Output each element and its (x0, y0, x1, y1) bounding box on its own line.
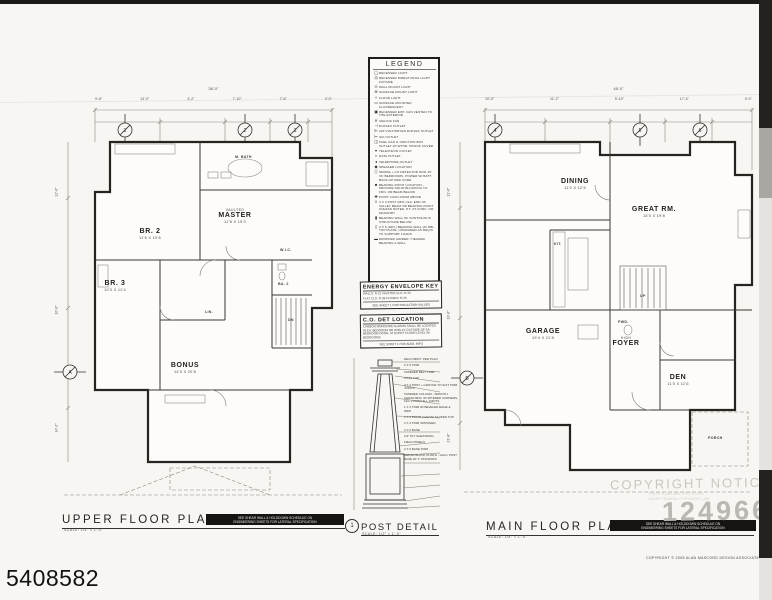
grid-bubble-label: 4 (494, 128, 497, 134)
legend-box: LEGEND ◯ RECESSED LIGHT ◎ RECESSED DIREC… (368, 57, 440, 283)
grid-bubble-label: 5 (639, 128, 642, 134)
legend-item: ⓢ SMOKE + CO DETECTOR W/IN 15' OF BEDROO… (373, 171, 436, 182)
legend-item-label: RECESSED EXH. FAN VENTED TO THE EXTERIOR (379, 111, 436, 118)
label-ba2: BA. 2 (278, 282, 289, 286)
label-up: UP (640, 294, 646, 298)
grid-bubble-label: 2 (244, 128, 247, 134)
room-label-br3: BR. 3 10'0 X 11'4 (85, 280, 145, 292)
legend-item-label: SURFACE MOUNTED FLUORESCENT (379, 102, 436, 109)
co-det-body: CARBON MONOXIDE ALARMS SHALL BE LOCATED … (363, 324, 439, 339)
legend-item-label: FUEL GAS & JUNCTION BOX OUTLET W/ WTHR. … (379, 141, 436, 148)
label-wic: W.I.C. (280, 248, 292, 252)
legend-item: ◆ SPEAKER LOCATION (373, 166, 436, 170)
legend-item-label: TELEVISION OUTLET (379, 150, 412, 154)
dimension-row: 10'-0"11'-2"5'-10"17'-4"9'-0" (485, 97, 752, 101)
callout-label: TAPERED COLUMN - SMOOTH CEDAR BDS. W/ MI… (404, 393, 458, 403)
grid-bubble-label: 3 (294, 128, 297, 134)
legend-item-label: 220 VOLT/DRYER DUPLEX OUTLET (379, 130, 434, 134)
energy-key-footer: SEE SHEET 1 FOR INSULATION VALUES (363, 301, 439, 308)
legend-item-label: BEARING WALL W/ CONTINUOUS STRUCTURE BEL… (379, 217, 436, 224)
grid-bubble-label: 1 (124, 128, 127, 134)
callout-label: 1/2" PLY SHEATHING (404, 435, 458, 438)
legend-item-label: DROPPED GIRDER / HEADER BEARING A WALL (379, 238, 436, 245)
legend-item: ▭ SURFACE MOUNTED FLUORESCENT (373, 102, 436, 109)
scan-edge-right (759, 0, 772, 600)
legend-item-label: DATA OUTLET (379, 155, 401, 159)
legend-item-label: 2 X 6 (MIN.) BEARING WALL W/ DBL. TOP PL… (379, 226, 436, 237)
dimension-row: 9'-6"13'-0"4'-2"7'-10"7'-6"3'-0" (95, 97, 332, 101)
callout-label: 2 X 6 TRIM (404, 364, 458, 367)
dimension-label: 14'-2" (55, 423, 59, 432)
dimension-label: 17'-4" (680, 97, 689, 101)
legend-item-label: DUPLEX OUTLET (379, 125, 406, 129)
legend-item: ◫ FUEL GAS & JUNCTION BOX OUTLET W/ WTHR… (373, 141, 436, 148)
callout-label: 1 X 4 TRIM W/ BEVELED EDGE & DRIP (404, 406, 458, 413)
label-porch: PORCH (708, 436, 722, 440)
copyright-line: COPYRIGHT © 2008 ALAN MASCORD DESIGN ASS… (646, 556, 772, 560)
dimension-label: 10'-0" (485, 97, 494, 101)
label-master-bath: M. BATH (235, 155, 252, 159)
legend-item: ▾ TELEVISION OUTLET (373, 150, 436, 154)
listing-photo-id: 5408582 (6, 565, 99, 592)
dimension-label: 3'-0" (325, 97, 332, 101)
room-label-garage: GARAGE 19'4 X 21'8 (508, 328, 578, 340)
post-detail-scale: SCALE: 1/2" = 1'-0" (362, 532, 401, 536)
room-label-foyer: HIGH FOYER (598, 336, 654, 348)
legend-item-label: TELEPHONE OUTLET (379, 161, 412, 165)
notice-line: ENGINEERING SHEETS FOR LATERAL SPECIFICA… (209, 520, 341, 524)
callout-label: CEDAR BLOCK PLINTH - GALV. POST BASE W/ … (404, 454, 458, 461)
room-label-den: DEN 11'0 X 11'6 (650, 374, 706, 386)
legend-item: ✕ CEILING FAN (373, 120, 436, 124)
dimension-label: 13'-0" (140, 97, 149, 101)
legend-item-label: RECESSED DIRECTIONAL LIGHT FIXTURE (379, 77, 436, 84)
callout-label: TAPERED BELT TRIM (404, 371, 458, 374)
dimension-label: 5'-10" (615, 97, 624, 101)
dimension-label: 11'-0" (447, 187, 451, 196)
legend-items: ◯ RECESSED LIGHT ◎ RECESSED DIRECTIONAL … (373, 72, 436, 245)
legend-item-label: 4 X 4 POST (MIN.) EA. END OF VALLEY BEAM… (379, 201, 436, 215)
legend-item: ▿ DATA OUTLET (373, 155, 436, 159)
legend-item-label: FLOOD LIGHT (379, 97, 401, 101)
legend-item: ▬ DROPPED GIRDER / HEADER BEARING A WALL (373, 238, 436, 245)
legend-item: ◯ RECESSED LIGHT (373, 72, 436, 76)
scanned-plan-sheet: 1 2 3 A (0, 0, 772, 600)
legend-item-label: GFI OUTLET (379, 136, 398, 140)
callout-label: DECO BRKT. PER PLAN (404, 358, 458, 361)
legend-item: ▣ RECESSED EXH. FAN VENTED TO THE EXTERI… (373, 111, 436, 118)
grid-bubble-label: 6 (699, 128, 702, 134)
dimension-label: 11'-2" (550, 97, 559, 101)
callout-label: 2 X 4 TRIM 'APRONED' (404, 422, 458, 425)
callout-label: 2 X 6 PLINTH CAP W/ SLOPED TOP (404, 416, 458, 419)
legend-item: ◂ TELEPHONE OUTLET (373, 161, 436, 165)
label-linen: LIN. (205, 310, 213, 314)
room-label-dining: DINING 11'0 X 12'6 (545, 178, 605, 190)
room-label-bonus: BONUS 14'0 X 20'8 (150, 362, 220, 374)
room-label-master: VAULTED MASTER 12'6 X 15'0 (200, 208, 270, 225)
detail-number-bubble: 1 (345, 519, 359, 533)
callout-label: 4 X 4 POST + GROOVE TO SUIT TRIM JOINTS (404, 384, 458, 391)
copyright-notice-watermark: COPYRIGHT NOTICE (610, 475, 772, 493)
post-detail-callouts: DECO BRKT. PER PLAN2 X 6 TRIMTAPERED BEL… (404, 358, 458, 464)
scan-edge-dark-segment (759, 470, 772, 558)
label-powder: PWD. (618, 320, 629, 324)
legend-item-label: SMOKE + CO DETECTOR W/IN 15' OF BEDROOMS… (379, 171, 436, 182)
upper-plan-title: UPPER FLOOR PLAN (62, 514, 218, 526)
callout-label: 2 X 6 BASE (404, 429, 458, 432)
legend-item: ✚ POINT LOAD FROM ABOVE (373, 196, 436, 200)
scan-edge-top (0, 0, 772, 4)
legend-item: ⊕ SURFACE MOUNT LIGHT (373, 91, 436, 95)
legend-item: ■ BEARING POINT LOCATION - PROVIDE SOLID… (373, 184, 436, 195)
scan-edge-gray-segment (759, 128, 772, 198)
legend-item: ⊢ GFI OUTLET (373, 136, 436, 140)
legend-item: ⊣ DUPLEX OUTLET (373, 125, 436, 129)
legend-item: ◎ RECESSED DIRECTIONAL LIGHT FIXTURE (373, 77, 436, 84)
energy-envelope-key-box: ENERGY ENVELOPE KEY WALLS: R-21 VAULTED … (360, 280, 442, 309)
legend-item: ‖ 4 X 4 POST (MIN.) EA. END OF VALLEY BE… (373, 201, 436, 215)
legend-item: ✧ FLOOD LIGHT (373, 97, 436, 101)
overall-dimension: 38'-0" (95, 86, 332, 91)
room-label-great-rm: GREAT RM. 15'0 X 19'8 (618, 206, 690, 218)
dimension-label: 7'-10" (232, 97, 241, 101)
label-kitchen: KIT. (554, 242, 562, 246)
legend-item-label: RECESSED LIGHT (379, 72, 407, 76)
room-label-br2: BR. 2 11'6 X 10'8 (120, 228, 180, 240)
upper-plan-lines: 1 2 3 A (50, 80, 350, 510)
legend-item: ▯ 2 X 6 (MIN.) BEARING WALL W/ DBL. TOP … (373, 226, 436, 237)
legend-item-label: BEARING POINT LOCATION - PROVIDE SOLID B… (379, 184, 436, 195)
main-floor-plan-drawing: 4 5 6 B C (450, 80, 760, 510)
dimension-label: 9'-0" (745, 97, 752, 101)
upper-floor-plan-drawing: 1 2 3 A (50, 80, 350, 510)
overall-dimension: 48'-0" (485, 86, 752, 91)
callout-label: 2 X 6 BASE TRIM (404, 448, 458, 451)
label-dn: DN (288, 318, 294, 322)
lateral-spec-notice: SEE SHEAR WALL & HOLDDOWN SCHEDULE ON EN… (206, 514, 344, 525)
scan-edge-dark-segment (759, 0, 772, 128)
co-detector-location-box: C.O. DET LOCATION CARBON MONOXIDE ALARMS… (360, 313, 442, 349)
co-det-footer: SEE SHEET 1 FOR ADD'L INFO (363, 340, 439, 347)
legend-item-label: SURFACE MOUNT LIGHT (379, 91, 418, 95)
main-plan-scale: SCALE: 1/4" = 1'-0" (488, 535, 527, 539)
dimension-label: 9'-6" (95, 97, 102, 101)
callout-label: POST CAP (404, 377, 458, 380)
upper-plan-scale: SCALE: 1/4" = 1'-0" (64, 528, 103, 532)
main-plan-lines: 4 5 6 B C (450, 80, 760, 510)
plan-number-watermark: 124966 (662, 495, 771, 528)
main-plan-title: MAIN FLOOR PLAN (486, 521, 628, 533)
dimension-label: 4'-2" (187, 97, 194, 101)
legend-item: ⊙ WALL MOUNT LIGHT (373, 86, 436, 90)
legend-item-label: CEILING FAN (379, 120, 399, 124)
legend-title: LEGEND (373, 61, 436, 70)
dimension-label: 10'-0" (55, 305, 59, 314)
dimension-label: 7'-6" (280, 97, 287, 101)
legend-item-label: POINT LOAD FROM ABOVE (379, 196, 421, 200)
dimension-label: 12'-6" (55, 187, 59, 196)
dimension-column: 12'-6"10'-0"14'-2" (52, 190, 61, 430)
dimension-label: 13'-6" (447, 310, 451, 319)
callout-label: FIELD PANELS (404, 441, 458, 444)
legend-item-label: WALL MOUNT LIGHT (379, 86, 411, 90)
legend-item: ⊫ 220 VOLT/DRYER DUPLEX OUTLET (373, 130, 436, 134)
legend-item: ▮ BEARING WALL W/ CONTINUOUS STRUCTURE B… (373, 217, 436, 224)
legend-item-label: SPEAKER LOCATION (379, 166, 412, 170)
